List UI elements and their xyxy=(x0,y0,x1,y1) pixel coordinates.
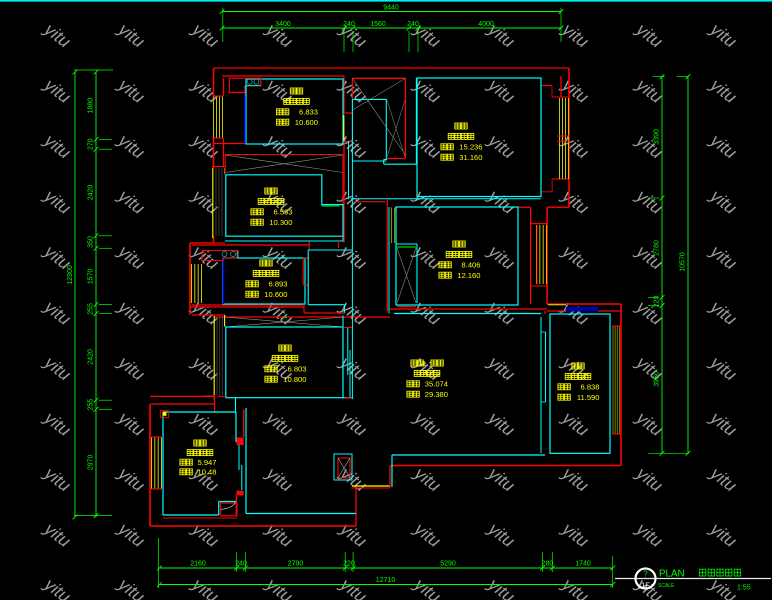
svg-text:6.803: 6.803 xyxy=(287,365,306,374)
svg-text:10.600: 10.600 xyxy=(295,118,318,127)
svg-text:255: 255 xyxy=(88,303,95,315)
svg-text:2160: 2160 xyxy=(190,561,206,568)
svg-text:SCALE: SCALE xyxy=(658,583,675,589)
svg-text:PLAN: PLAN xyxy=(659,569,685,580)
svg-text:31.160: 31.160 xyxy=(459,153,482,162)
svg-text:12710: 12710 xyxy=(376,577,396,584)
svg-text:6.838: 6.838 xyxy=(580,383,599,392)
svg-text:240: 240 xyxy=(343,21,355,28)
svg-text:4000: 4000 xyxy=(478,21,494,28)
svg-text:11.590: 11.590 xyxy=(577,393,600,402)
svg-text:?: ? xyxy=(643,570,648,579)
svg-text:350: 350 xyxy=(88,236,95,248)
svg-text:5290: 5290 xyxy=(440,561,456,568)
svg-text:9440: 9440 xyxy=(383,5,399,12)
svg-text:6.533: 6.533 xyxy=(273,208,292,217)
svg-text:270: 270 xyxy=(88,138,95,150)
svg-text:10.600: 10.600 xyxy=(264,290,287,299)
svg-text:3400: 3400 xyxy=(275,21,291,28)
svg-text:12.160: 12.160 xyxy=(457,271,480,280)
svg-text:10570: 10570 xyxy=(680,252,687,272)
svg-text:2420: 2420 xyxy=(88,349,95,365)
svg-text:1740: 1740 xyxy=(575,561,591,568)
svg-text:10.48: 10.48 xyxy=(197,468,216,477)
svg-text:1:55: 1:55 xyxy=(737,585,751,592)
svg-text:2780: 2780 xyxy=(654,240,661,256)
svg-text:240: 240 xyxy=(407,21,419,28)
svg-text:1570: 1570 xyxy=(88,269,95,285)
svg-text:6.893: 6.893 xyxy=(268,280,287,289)
svg-text:12300: 12300 xyxy=(67,265,74,285)
svg-text:29.380: 29.380 xyxy=(425,390,448,399)
svg-text:3950: 3950 xyxy=(654,371,661,387)
svg-text:3390: 3390 xyxy=(654,129,661,145)
svg-text:15.236: 15.236 xyxy=(459,143,482,152)
svg-text:1560: 1560 xyxy=(370,21,386,28)
svg-text:5.947: 5.947 xyxy=(197,458,216,467)
svg-text:10.800: 10.800 xyxy=(283,375,306,384)
svg-text:8.406: 8.406 xyxy=(461,261,480,270)
svg-text:1F: 1F xyxy=(641,581,650,590)
svg-text:10.300: 10.300 xyxy=(269,218,292,227)
svg-text:280: 280 xyxy=(542,561,554,568)
svg-text:1880: 1880 xyxy=(88,98,95,114)
svg-text:255: 255 xyxy=(88,399,95,411)
svg-text:6.833: 6.833 xyxy=(299,108,318,117)
svg-text:35.074: 35.074 xyxy=(425,380,448,389)
svg-text:&: & xyxy=(421,359,426,368)
svg-text:2970: 2970 xyxy=(88,455,95,471)
svg-text:2420: 2420 xyxy=(88,185,95,201)
svg-text:2790: 2790 xyxy=(288,561,304,568)
